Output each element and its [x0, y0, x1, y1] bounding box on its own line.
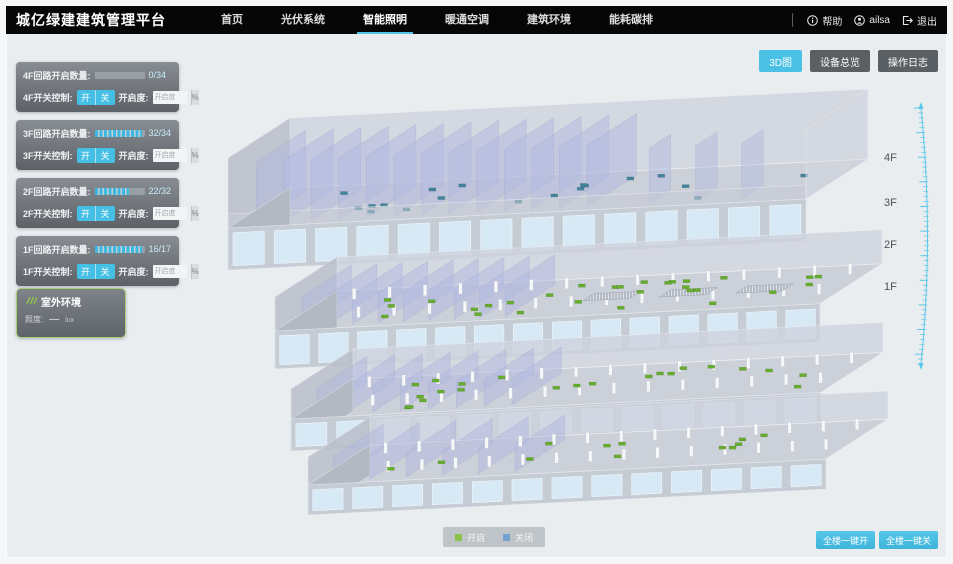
illuminance-label: 照度:	[25, 314, 43, 325]
circuit-progress-fill	[95, 246, 142, 253]
switch-group: 开 关	[77, 264, 115, 279]
user-name: ailsa	[869, 15, 890, 26]
switch-control-label: 1F开关控制:	[23, 265, 73, 278]
help-label: 帮助	[822, 13, 842, 28]
floor-panel-2f: 2F回路开启数量: 22/32 2F开关控制: 开 关 开启度: %	[16, 178, 179, 228]
dim-input[interactable]	[153, 265, 187, 278]
device-overview-button[interactable]: 设备总览	[810, 50, 870, 72]
app-title: 城亿绿建建筑管理平台	[16, 10, 166, 30]
circuit-count-label: 2F回路开启数量:	[23, 185, 91, 198]
switch-group: 开 关	[77, 148, 115, 163]
all-off-button[interactable]: 全楼一键关	[879, 531, 938, 549]
floor-panel-1f: 1F回路开启数量: 16/17 1F开关控制: 开 关 开启度: %	[16, 236, 179, 286]
top-header: 城亿绿建建筑管理平台 首页 光伏系统 智能照明 暖通空调 建筑环境 能耗碳排 帮…	[6, 6, 947, 34]
legend-off-swatch	[503, 534, 510, 541]
circuit-progress-bar	[95, 188, 145, 195]
dim-input[interactable]	[153, 149, 187, 162]
switch-off-button[interactable]: 关	[96, 206, 115, 221]
circuit-count-value: 16/17	[149, 244, 172, 254]
nav-item-hvac[interactable]: 暖通空调	[439, 6, 495, 34]
header-right: 帮助 ailsa 退出	[792, 6, 937, 34]
logout-button[interactable]: 退出	[902, 13, 937, 28]
main-nav: 首页 光伏系统 智能照明 暖通空调 建筑环境 能耗碳排	[202, 6, 672, 34]
legend-off-label: 关闭	[515, 531, 533, 544]
view-3d-button[interactable]: 3D图	[759, 50, 802, 72]
circuit-progress-bar	[95, 130, 145, 137]
view-toolbar: 3D图 设备总览 操作日志	[759, 50, 938, 72]
user-menu[interactable]: ailsa	[854, 15, 890, 26]
outdoor-env-icon	[25, 296, 37, 308]
floor-panel-3f: 3F回路开启数量: 32/34 3F开关控制: 开 关 开启度: %	[16, 120, 179, 170]
dim-input[interactable]	[153, 91, 187, 104]
circuit-count-label: 4F回路开启数量:	[23, 69, 91, 82]
help-button[interactable]: 帮助	[807, 13, 842, 28]
switch-on-button[interactable]: 开	[77, 148, 96, 163]
circuit-count-value: 0/34	[149, 70, 167, 80]
legend-on-label: 开启	[467, 531, 485, 544]
circuit-count-value: 22/32	[149, 186, 172, 196]
switch-control-label: 4F开关控制:	[23, 91, 73, 104]
switch-on-button[interactable]: 开	[77, 206, 96, 221]
nav-item-smart-lighting[interactable]: 智能照明	[357, 6, 413, 34]
operation-log-button[interactable]: 操作日志	[878, 50, 938, 72]
floor-label-1f[interactable]: 1F	[884, 281, 897, 293]
percent-button[interactable]: %	[191, 148, 199, 163]
dim-label: 开启度:	[119, 265, 149, 278]
percent-button[interactable]: %	[191, 90, 199, 105]
logout-icon	[902, 15, 913, 26]
percent-button[interactable]: %	[191, 264, 199, 279]
dim-label: 开启度:	[119, 91, 149, 104]
app-window: 城亿绿建建筑管理平台 首页 光伏系统 智能照明 暖通空调 建筑环境 能耗碳排 帮…	[0, 0, 953, 564]
switch-off-button[interactable]: 关	[96, 148, 115, 163]
switch-group: 开 关	[77, 90, 115, 105]
illuminance-value: —	[49, 314, 59, 325]
switch-on-button[interactable]: 开	[77, 264, 96, 279]
zoom-slider[interactable]	[906, 102, 940, 370]
header-divider	[792, 13, 793, 27]
floor-label-4f[interactable]: 4F	[884, 152, 897, 164]
circuit-count-label: 1F回路开启数量:	[23, 243, 91, 256]
switch-off-button[interactable]: 关	[96, 90, 115, 105]
floor-label-2f[interactable]: 2F	[884, 239, 897, 251]
building-3d-view[interactable]	[213, 83, 898, 528]
circuit-count-label: 3F回路开启数量:	[23, 127, 91, 140]
building-master-controls: 全楼一键开 全楼一键关	[816, 531, 938, 549]
legend-on-swatch	[455, 534, 462, 541]
circuit-progress-bar	[95, 246, 145, 253]
dim-label: 开启度:	[119, 149, 149, 162]
light-status-legend: 开启 关闭	[443, 527, 545, 547]
switch-on-button[interactable]: 开	[77, 90, 96, 105]
nav-item-building-env[interactable]: 建筑环境	[521, 6, 577, 34]
percent-button[interactable]: %	[191, 206, 199, 221]
switch-group: 开 关	[77, 206, 115, 221]
circuit-progress-fill	[95, 188, 129, 195]
illuminance-unit: lux	[65, 317, 74, 324]
help-icon	[807, 15, 818, 26]
nav-item-pv-system[interactable]: 光伏系统	[275, 6, 331, 34]
nav-item-energy-carbon[interactable]: 能耗碳排	[603, 6, 659, 34]
floor-label-3f[interactable]: 3F	[884, 197, 897, 209]
all-on-button[interactable]: 全楼一键开	[816, 531, 875, 549]
switch-control-label: 2F开关控制:	[23, 207, 73, 220]
switch-off-button[interactable]: 关	[96, 264, 115, 279]
outdoor-env-panel: 室外环境 照度: — lux	[16, 288, 126, 338]
nav-item-home[interactable]: 首页	[215, 6, 249, 34]
circuit-progress-bar	[95, 72, 145, 79]
circuit-progress-fill	[95, 130, 142, 137]
circuit-count-value: 32/34	[149, 128, 172, 138]
outdoor-env-title: 室外环境	[41, 294, 81, 309]
dim-input[interactable]	[153, 207, 187, 220]
dim-label: 开启度:	[119, 207, 149, 220]
floor-panel-4f: 4F回路开启数量: 0/34 4F开关控制: 开 关 开启度: %	[16, 62, 179, 112]
switch-control-label: 3F开关控制:	[23, 149, 73, 162]
logout-label: 退出	[917, 13, 937, 28]
user-icon	[854, 15, 865, 26]
